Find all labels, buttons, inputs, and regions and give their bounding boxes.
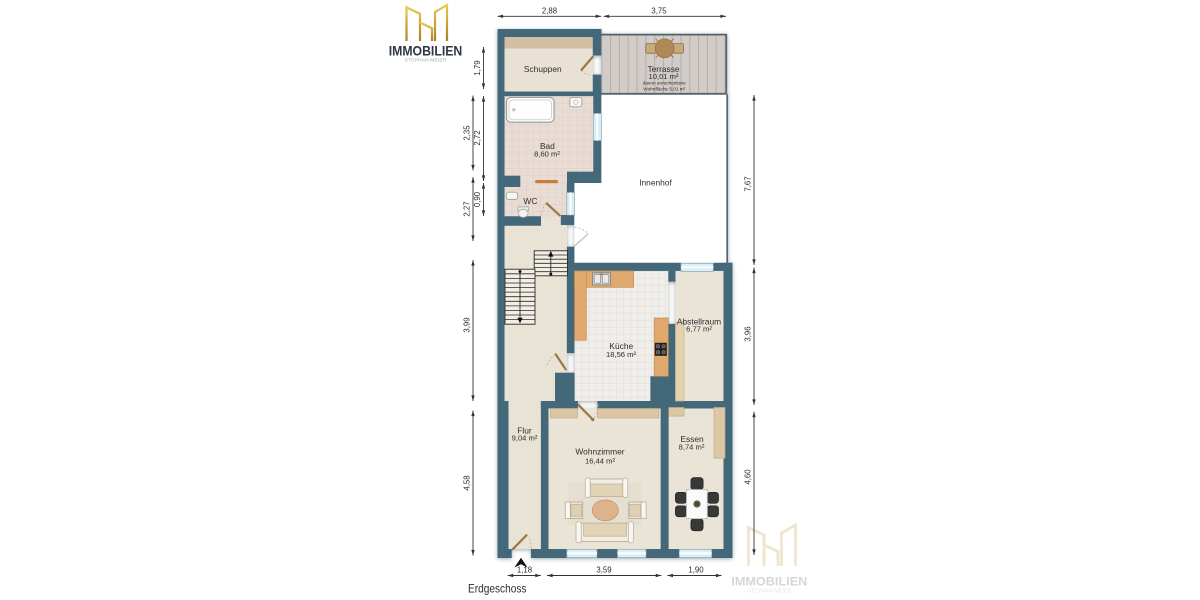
svg-text:IMMOBILIEN: IMMOBILIEN — [389, 43, 463, 58]
svg-text:18,56 m²: 18,56 m² — [606, 350, 636, 359]
svg-text:STEPHAN MEIER: STEPHAN MEIER — [405, 58, 447, 64]
svg-text:1,90: 1,90 — [688, 566, 704, 575]
svg-text:Innenhof: Innenhof — [639, 177, 672, 187]
svg-text:3,96: 3,96 — [744, 326, 753, 341]
svg-text:1,18: 1,18 — [517, 566, 532, 575]
svg-text:2,72: 2,72 — [473, 130, 482, 145]
svg-text:Schuppen: Schuppen — [524, 64, 562, 74]
svg-text:16,44 m²: 16,44 m² — [585, 457, 615, 466]
svg-text:4,58: 4,58 — [463, 475, 472, 490]
svg-text:3,75: 3,75 — [651, 7, 667, 16]
svg-text:STEPHAN MEIER: STEPHAN MEIER — [747, 589, 791, 595]
svg-text:8,60 m²: 8,60 m² — [534, 149, 560, 158]
svg-text:2,35: 2,35 — [463, 125, 472, 141]
svg-text:3,59: 3,59 — [596, 566, 611, 575]
svg-text:IMMOBILIEN: IMMOBILIEN — [731, 574, 807, 588]
svg-text:8,74 m²: 8,74 m² — [679, 442, 705, 451]
svg-text:Wohnzimmer: Wohnzimmer — [575, 447, 624, 457]
svg-text:Erdgeschoss: Erdgeschoss — [468, 582, 527, 596]
svg-text:4,60: 4,60 — [744, 469, 753, 485]
svg-text:2,27: 2,27 — [463, 201, 472, 216]
svg-text:davon anrechenbare: davon anrechenbare — [643, 80, 686, 85]
svg-text:Wohnfläche 5,01 m²: Wohnfläche 5,01 m² — [643, 87, 685, 92]
svg-text:6,77 m²: 6,77 m² — [686, 325, 712, 334]
svg-text:2,88: 2,88 — [542, 7, 557, 16]
svg-text:1,79: 1,79 — [473, 60, 482, 75]
svg-text:0,90: 0,90 — [473, 191, 482, 207]
svg-text:3,99: 3,99 — [463, 317, 472, 332]
svg-text:WC: WC — [523, 196, 537, 206]
svg-text:7,67: 7,67 — [744, 176, 753, 191]
svg-text:9,04 m²: 9,04 m² — [512, 433, 538, 442]
